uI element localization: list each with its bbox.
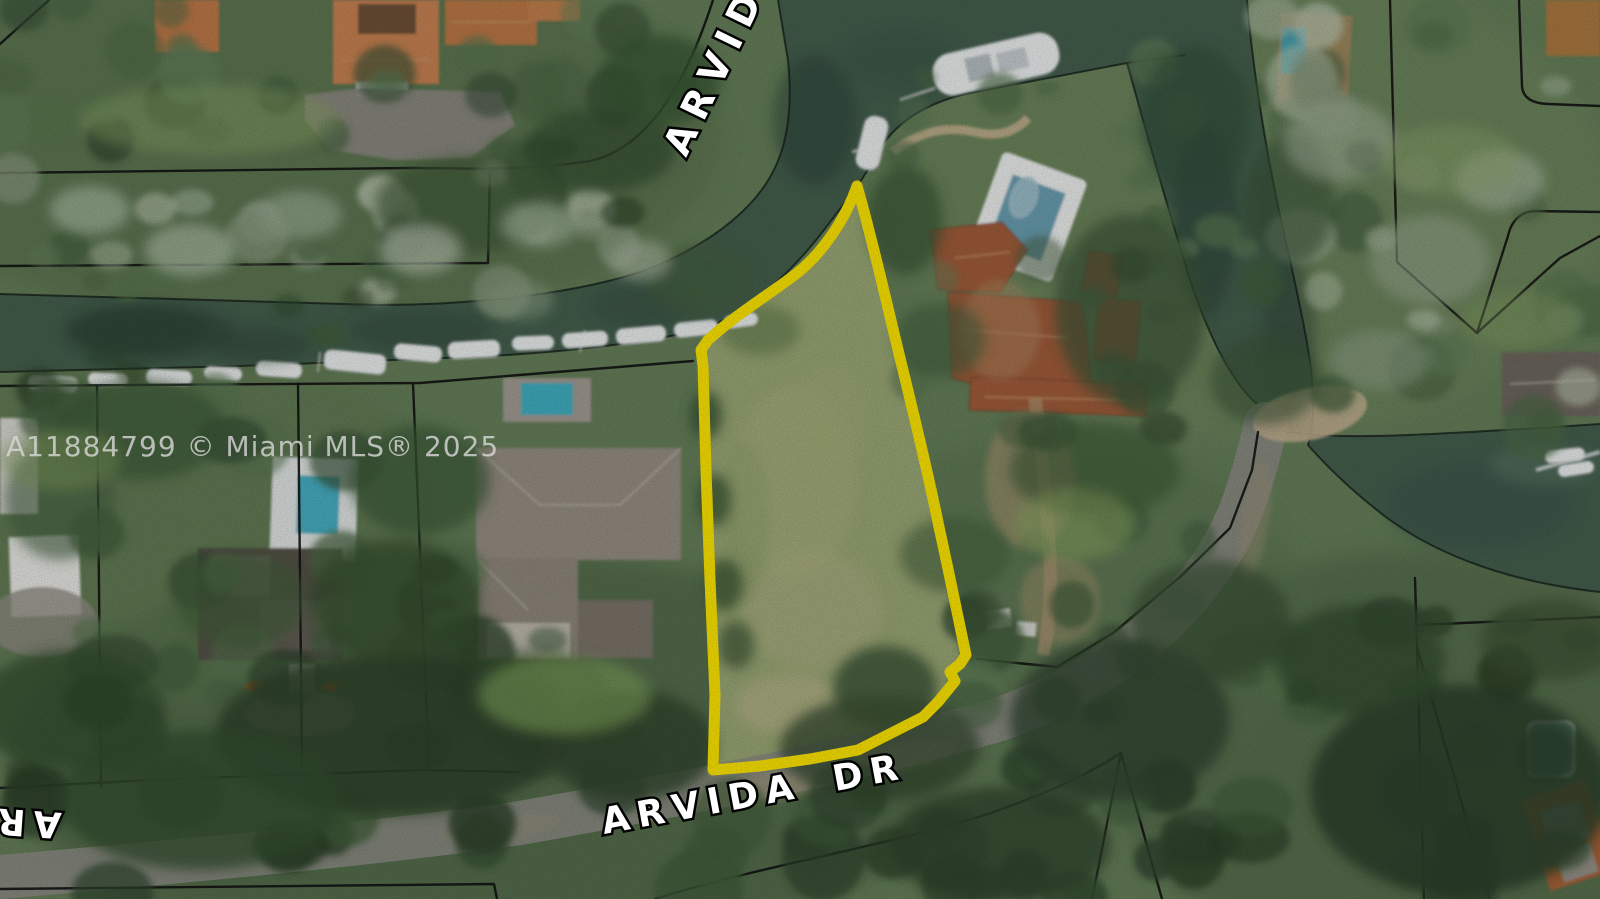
aerial-listing-photo[interactable]: ARVIDA ARVIDA DR AR A11884799 © Miami ML… <box>0 0 1600 899</box>
street-label-partial-ar: AR <box>0 799 63 845</box>
mls-watermark: A11884799 © Miami MLS® 2025 <box>6 430 499 463</box>
